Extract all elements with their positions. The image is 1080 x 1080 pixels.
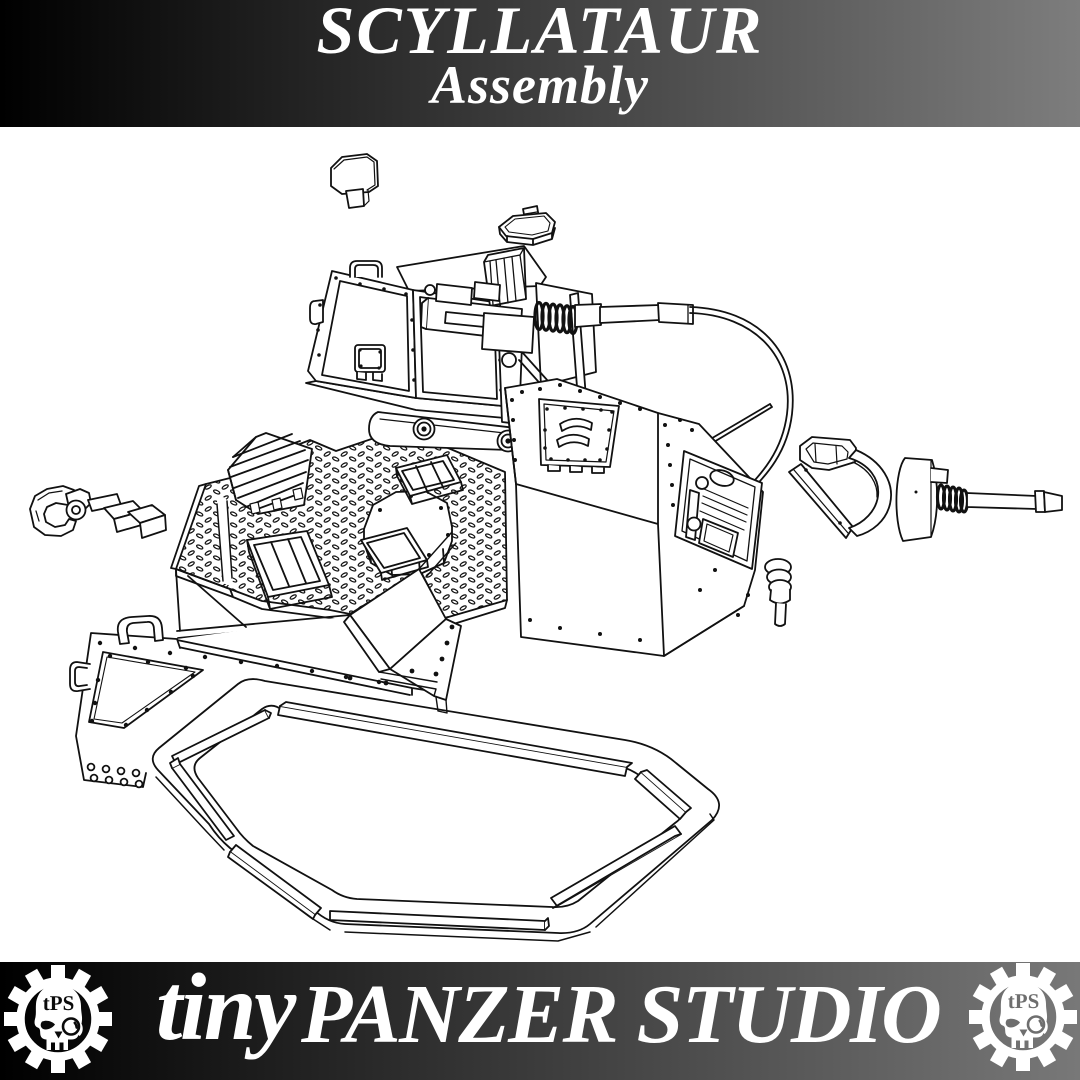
svg-text:tPS: tPS [43, 991, 75, 1015]
